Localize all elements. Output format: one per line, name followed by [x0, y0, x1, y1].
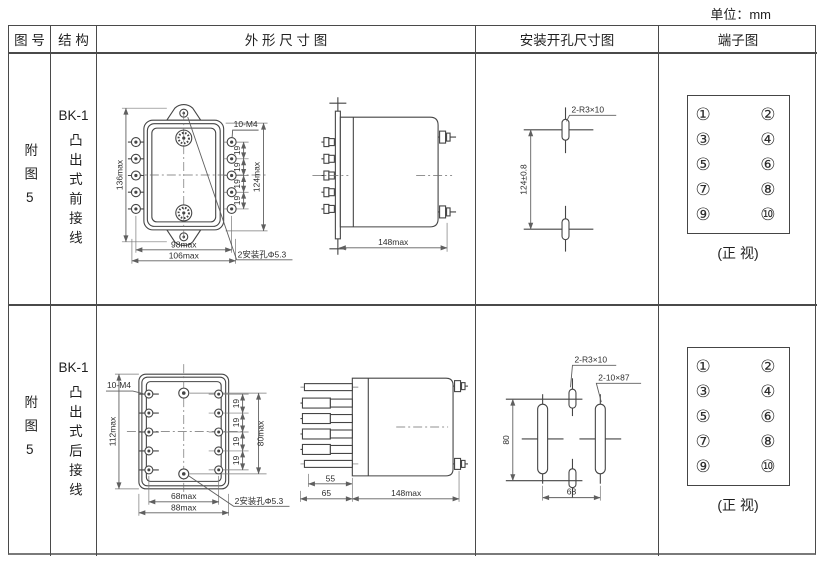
left-terminals [128, 138, 144, 214]
structure-type-label: 凸出式后接线 [66, 385, 81, 502]
terminal-right-column: ② ④ ⑥ ⑧ ⑩ [760, 106, 775, 223]
terminal-left-column: ① ③ ⑤ ⑦ ⑨ [696, 106, 711, 223]
dim-terminal-span: 124max [252, 161, 262, 192]
terminal-1: ① [696, 358, 711, 375]
col-header-mounting: 安装开孔尺寸图 [476, 26, 659, 54]
terminal-left-column: ① ③ ⑤ ⑦ ⑨ [696, 358, 711, 475]
terminal-9: ⑨ [696, 206, 711, 223]
rear-terminal-studs [300, 384, 358, 468]
terminal-right-column: ② ④ ⑥ ⑧ ⑩ [760, 358, 775, 475]
terminal-10: ⑩ [760, 458, 775, 475]
label-slot: 2-R3×10 [574, 354, 607, 364]
model-label: BK-1 [58, 108, 88, 123]
dim-pitch-1: 19 [232, 145, 242, 155]
unit-label: 单位：mm [710, 4, 771, 23]
outline-drawing-rear-wiring: 19 19 19 19 80max 112max 10-M4 68max [97, 306, 475, 556]
col-header-structure: 结 构 [51, 26, 97, 54]
row2-outline-cell: 19 19 19 19 80max 112max 10-M4 68max [97, 306, 476, 556]
mounting-slots [524, 107, 594, 251]
terminal-caption: (正 视) [717, 243, 758, 263]
dim-depth: 148max [391, 488, 422, 498]
label-slot: 2-R3×10 [571, 104, 604, 114]
side-view: 55 65 148max [300, 378, 468, 502]
row1-terminal-cell: ① ③ ⑤ ⑦ ⑨ ② ④ ⑥ ⑧ ⑩ (正 视) [659, 54, 817, 306]
terminal-2: ② [760, 106, 775, 123]
terminal-2: ② [760, 358, 775, 375]
terminal-3: ③ [696, 383, 711, 400]
label-mount-hole: 2安装孔Φ5.3 [238, 249, 287, 259]
dim-hole-spacing-v: 124±0.8 [519, 164, 529, 195]
dim-pitch-4: 19 [231, 455, 241, 465]
dim-overall-height: 112max [107, 416, 117, 446]
dim-pitch-4: 19 [232, 196, 242, 206]
figure-no-label: 附图5 [22, 143, 38, 215]
figure-no-label: 附图5 [22, 395, 38, 467]
dim-flange-depth: 65 [322, 488, 332, 498]
terminal-3: ③ [696, 131, 711, 148]
dim-width-overall: 106max [169, 250, 200, 260]
terminal-8: ⑧ [760, 433, 775, 450]
terminal-5: ⑤ [696, 156, 711, 173]
terminal-5: ⑤ [696, 408, 711, 425]
row2-terminal-cell: ① ③ ⑤ ⑦ ⑨ ② ④ ⑥ ⑧ ⑩ (正 视) [659, 306, 817, 556]
terminal-box: ① ③ ⑤ ⑦ ⑨ ② ④ ⑥ ⑧ ⑩ [687, 347, 790, 486]
front-view: 19 19 19 19 124max 136max [114, 105, 292, 264]
rear-studs [453, 381, 468, 470]
row2-structure-cell: BK-1 凸出式后接线 [51, 306, 97, 556]
dim-depth: 148max [378, 237, 409, 247]
terminal-4: ④ [760, 383, 775, 400]
terminal-7: ⑦ [696, 433, 711, 450]
label-mount-hole: 2安装孔Φ5.3 [235, 496, 284, 506]
dim-pitch-3: 19 [231, 436, 241, 446]
terminal-10: ⑩ [760, 206, 775, 223]
terminal-9: ⑨ [696, 458, 711, 475]
row2-figure-no-cell: 附图5 [9, 306, 51, 556]
col-header-terminal: 端子图 [659, 26, 817, 54]
dim-pitch-2: 19 [231, 418, 241, 428]
page: 单位：mm 图 号 结 构 外 形 尺 寸 图 安装开孔尺寸图 端子图 附图5 … [0, 0, 823, 569]
dim-terminal-span: 80max [256, 420, 266, 446]
terminal-diagram: ① ③ ⑤ ⑦ ⑨ ② ④ ⑥ ⑧ ⑩ (正 视) [659, 306, 817, 556]
dim-pitch-1: 19 [231, 399, 241, 409]
dim-width-inner: 98max [171, 239, 197, 249]
terminal-4: ④ [760, 131, 775, 148]
col-header-outline: 外 形 尺 寸 图 [97, 26, 476, 54]
dim-pitch-2: 19 [232, 162, 242, 172]
structure-type-label: 凸出式前接线 [66, 133, 81, 250]
terminal-7: ⑦ [696, 181, 711, 198]
terminal-diagram: ① ③ ⑤ ⑦ ⑨ ② ④ ⑥ ⑧ ⑩ (正 视) [659, 54, 817, 304]
dim-pitch-3: 19 [232, 179, 242, 189]
dim-hole-spacing-v: 80 [501, 435, 511, 445]
mounting-slots [506, 378, 621, 497]
terminal-caption: (正 视) [717, 495, 758, 515]
mounting-drawing-rear-wiring: 80 68 2-R3×10 2-10×87 [476, 306, 658, 556]
row2-mounting-cell: 80 68 2-R3×10 2-10×87 [476, 306, 659, 556]
terminal-box: ① ③ ⑤ ⑦ ⑨ ② ④ ⑥ ⑧ ⑩ [687, 95, 790, 234]
spec-table: 图 号 结 构 外 形 尺 寸 图 安装开孔尺寸图 端子图 附图5 BK-1 凸… [8, 25, 816, 555]
side-view: 148max [312, 97, 456, 255]
terminal-6: ⑥ [760, 156, 775, 173]
terminal-1: ① [696, 106, 711, 123]
dim-width-inner: 68max [171, 491, 197, 501]
front-view: 19 19 19 19 80max 112max 10-M4 68max [106, 364, 290, 516]
row1-outline-cell: 19 19 19 19 124max 136max [97, 54, 476, 306]
outline-drawing-front-wiring: 19 19 19 19 124max 136max [97, 54, 475, 305]
row1-structure-cell: BK-1 凸出式前接线 [51, 54, 97, 306]
dim-width-overall: 88max [171, 502, 197, 512]
model-label: BK-1 [58, 360, 88, 375]
col-header-figure-no: 图 号 [9, 26, 51, 54]
dim-hole-spacing-h: 68 [567, 487, 577, 497]
label-terminal-screw: 10-M4 [107, 380, 131, 390]
dim-stud-length: 55 [326, 473, 336, 483]
rear-studs [438, 131, 456, 218]
mounting-drawing-front-wiring: 124±0.8 2-R3×10 [476, 54, 658, 305]
label-slot-2: 2-10×87 [598, 372, 630, 382]
terminal-8: ⑧ [760, 181, 775, 198]
label-terminal-screw: 10-M4 [234, 119, 258, 129]
row1-mounting-cell: 124±0.8 2-R3×10 [476, 54, 659, 306]
terminal-6: ⑥ [760, 408, 775, 425]
row1-figure-no-cell: 附图5 [9, 54, 51, 306]
dim-overall-height: 136max [114, 159, 124, 190]
